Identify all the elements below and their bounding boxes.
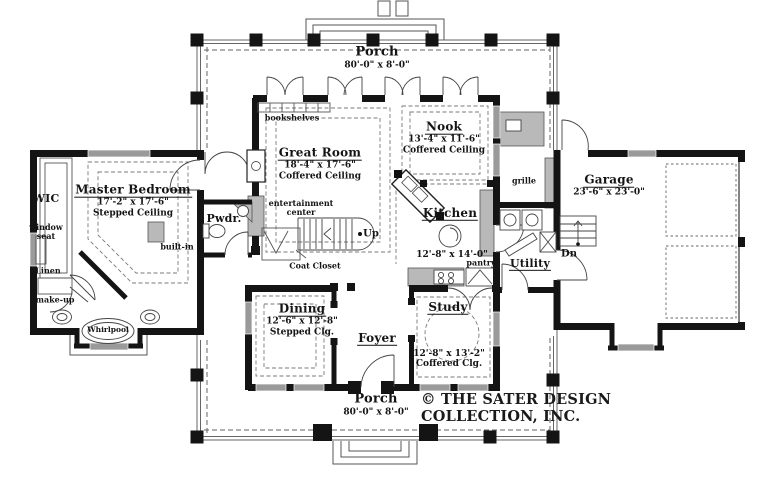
- room-label-garage: Garage 23'-6" x 23'-0": [573, 170, 645, 199]
- utility-fixtures: [500, 210, 556, 256]
- room-label-porch-bottom: Porch 80'-0" x 8'-0": [343, 393, 408, 418]
- coat-closet-label: Coat Closet: [289, 262, 340, 271]
- entertainment-center-label: entertainment center: [269, 199, 334, 217]
- floor-plan: Porch 80'-0" x 8'-0" Great Room 18'-4" x…: [0, 0, 760, 478]
- window-seat-label: window seat: [29, 223, 63, 241]
- garage-doors: [666, 162, 739, 322]
- built-in-label: built-in: [160, 243, 193, 252]
- room-label-great-room: Great Room 18'-4" x 17'-6" Coffered Ceil…: [278, 143, 362, 182]
- study-dims: 12'-8" x 13'-2" Coffered Clg.: [413, 349, 485, 369]
- pantry-label: pantry: [466, 259, 495, 268]
- copyright-line1: © THE SATER DESIGN: [421, 391, 611, 408]
- room-label-pwdr: Pwdr.: [206, 213, 241, 225]
- room-label-dining: Dining 12'-6" x 12'-8" Stepped Clg.: [266, 299, 338, 338]
- room-label-master-bedroom: Master Bedroom 17'-2" x 17'-6" Stepped C…: [74, 180, 192, 219]
- room-label-kitchen: Kitchen: [422, 203, 478, 221]
- copyright-line2: COLLECTION, INC.: [421, 408, 580, 425]
- room-label-foyer: Foyer: [357, 328, 397, 346]
- whirlpool-label: Whirlpool: [87, 326, 129, 334]
- garage-steps: [560, 216, 596, 246]
- room-label-study: Study: [427, 297, 468, 315]
- stair-dn-label: Dn: [561, 248, 577, 259]
- bookshelves-label: bookshelves: [265, 114, 320, 123]
- copyright-notice: © THE SATER DESIGN COLLECTION, INC.: [421, 391, 641, 425]
- make-up-label: make-up: [35, 296, 74, 305]
- stair-up-label: Up: [363, 228, 379, 239]
- linen-label: Linen: [35, 267, 60, 276]
- room-label-utility: Utility: [509, 253, 551, 271]
- room-label-porch-top: Porch 80'-0" x 8'-0": [344, 46, 409, 71]
- room-label-nook: Nook 13'-4" x 11'-6" Coffered Ceiling: [403, 117, 485, 156]
- room-label-wic: WIC: [33, 193, 60, 205]
- grille-label: grille: [512, 177, 536, 186]
